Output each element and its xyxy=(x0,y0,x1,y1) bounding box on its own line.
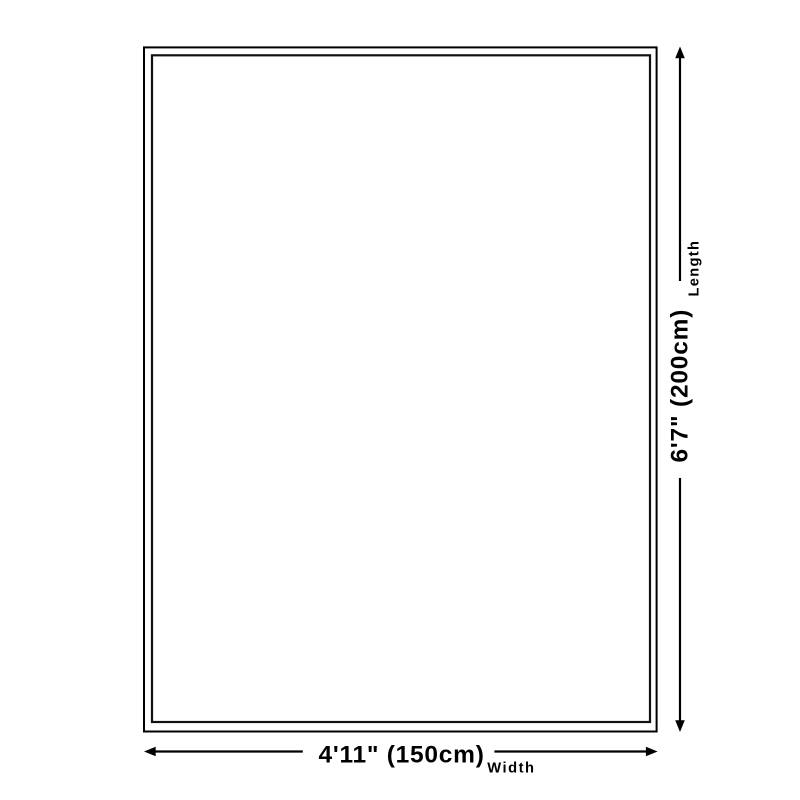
svg-text:6'7" (200cm): 6'7" (200cm) xyxy=(666,309,693,463)
svg-text:Width: Width xyxy=(487,761,535,777)
svg-text:4'11" (150cm): 4'11" (150cm) xyxy=(319,741,485,768)
svg-text:Length: Length xyxy=(687,240,703,297)
